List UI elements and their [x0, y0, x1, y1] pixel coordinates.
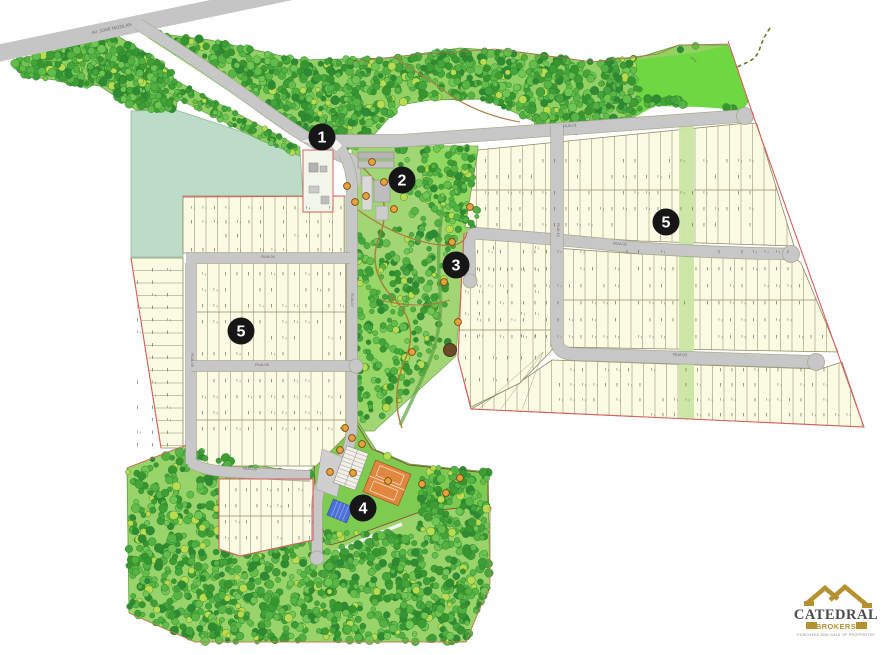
svg-text:CATEDRAL: CATEDRAL [794, 607, 878, 623]
svg-text:RUA 03: RUA 03 [673, 352, 688, 358]
svg-text:5: 5 [237, 324, 246, 341]
svg-text:RUA 07: RUA 07 [350, 293, 355, 308]
svg-text:RUA 02: RUA 02 [613, 241, 628, 247]
svg-text:5: 5 [662, 215, 671, 232]
svg-text:RUA 10: RUA 10 [556, 223, 561, 238]
svg-text:2: 2 [398, 173, 407, 190]
svg-text:RUA 05: RUA 05 [255, 362, 270, 367]
svg-text:RUA 06: RUA 06 [243, 466, 258, 472]
svg-text:4: 4 [359, 501, 368, 518]
svg-text:PURCHASE AND SALE OF PROPERTIE: PURCHASE AND SALE OF PROPERTIES [797, 633, 875, 637]
svg-text:RUA 01: RUA 01 [563, 122, 578, 128]
svg-text:RUA 04: RUA 04 [261, 254, 276, 259]
svg-text:BROKERS: BROKERS [816, 622, 856, 631]
svg-text:1: 1 [318, 130, 327, 147]
svg-text:3: 3 [452, 258, 461, 275]
svg-text:RUA 09: RUA 09 [190, 353, 195, 368]
